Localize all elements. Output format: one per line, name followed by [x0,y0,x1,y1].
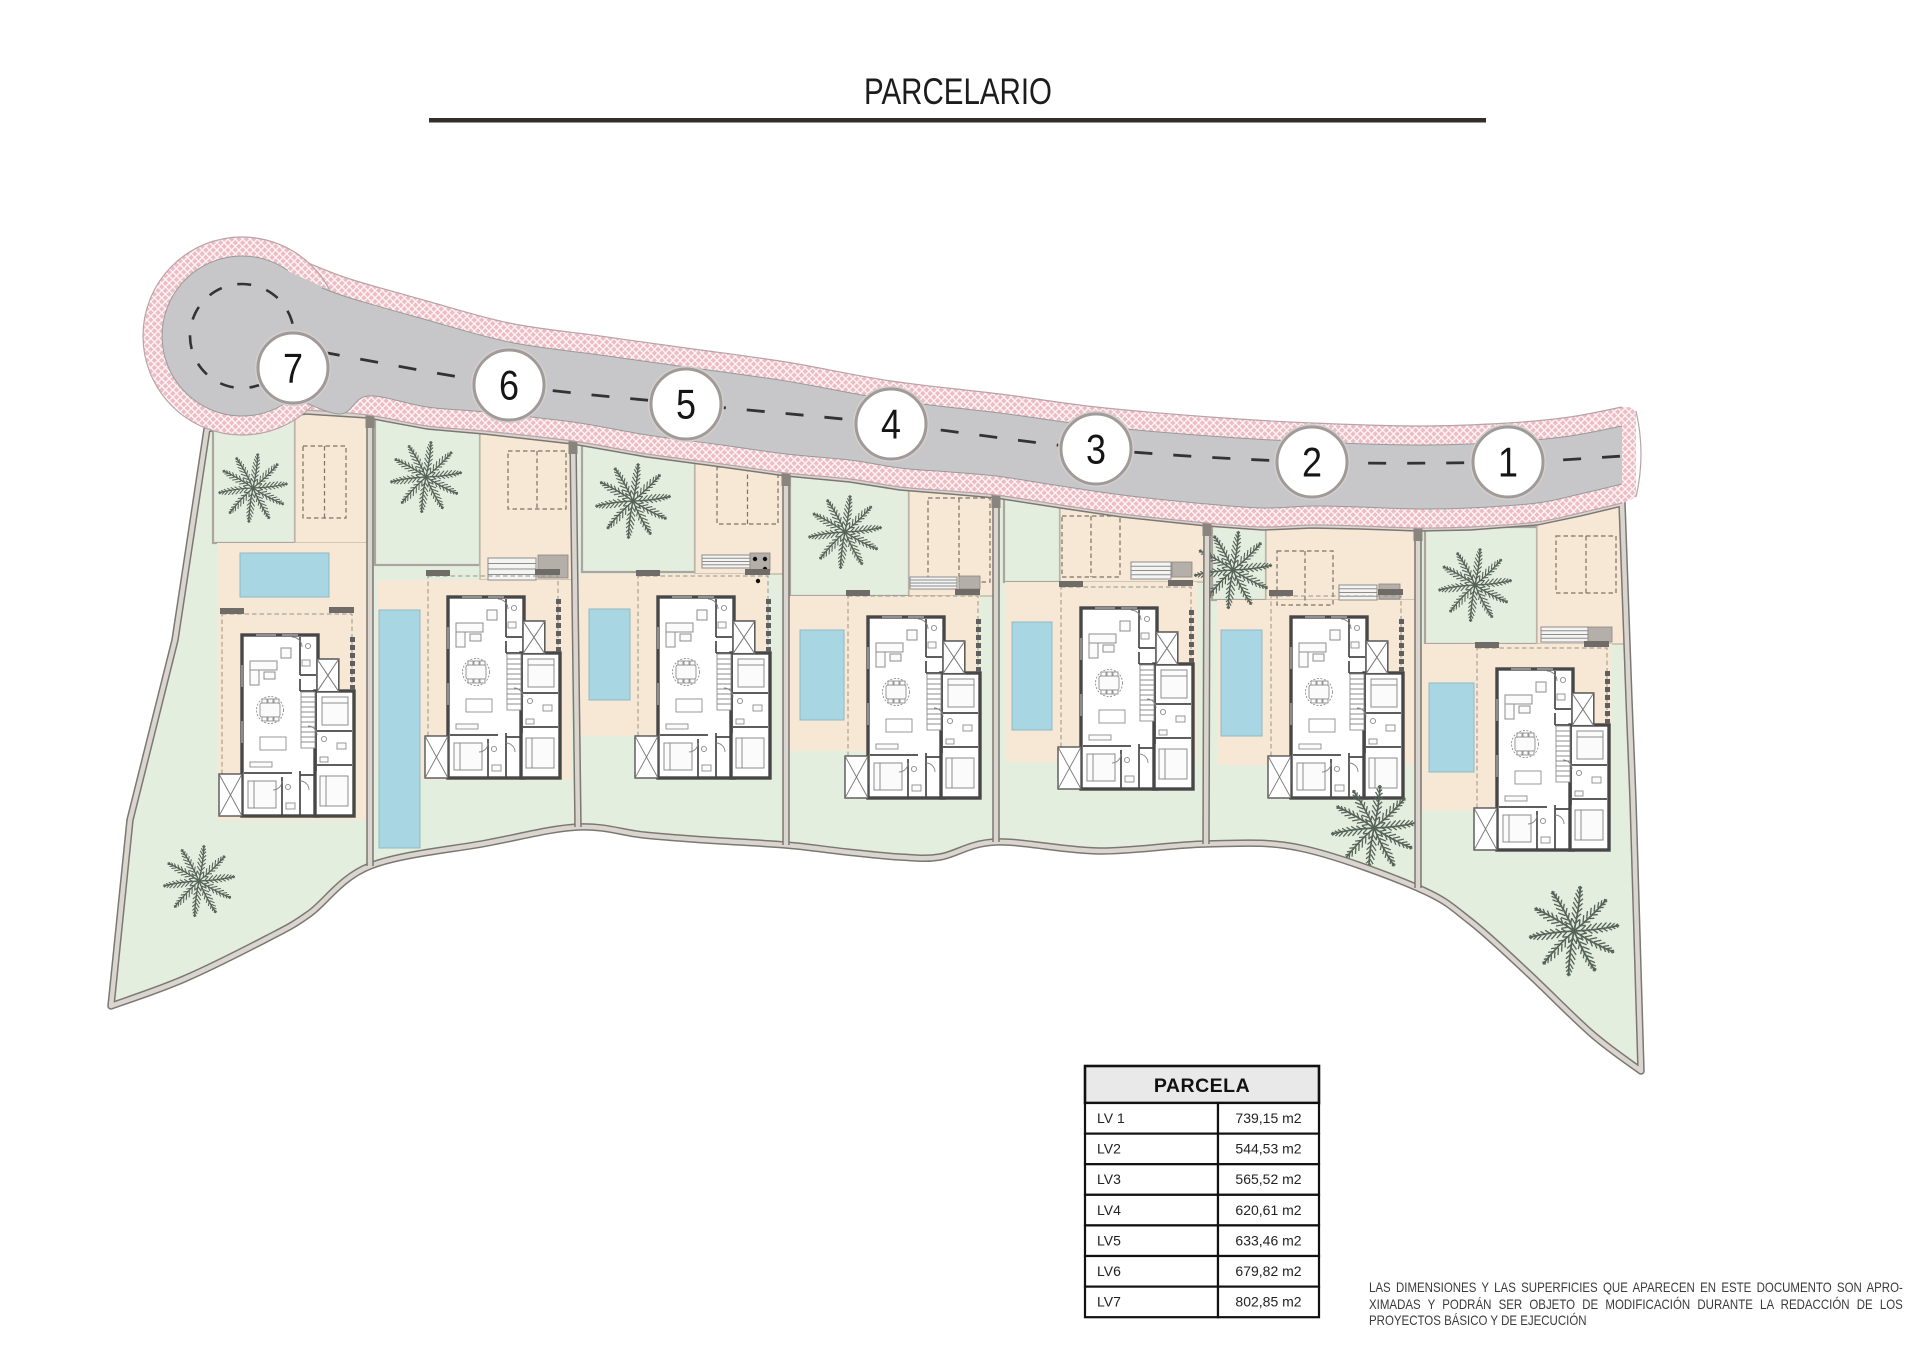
svg-text:PARCELARIO: PARCELARIO [864,71,1052,112]
svg-text:7: 7 [283,345,303,392]
svg-text:4: 4 [881,401,901,448]
svg-text:620,61 m2: 620,61 m2 [1235,1202,1301,1218]
svg-text:LV3: LV3 [1097,1171,1121,1187]
svg-text:6: 6 [499,362,519,409]
svg-text:739,15 m2: 739,15 m2 [1235,1110,1301,1126]
svg-text:LV4: LV4 [1097,1202,1121,1218]
svg-text:2: 2 [1302,439,1322,486]
svg-text:LV2: LV2 [1097,1141,1121,1157]
svg-text:544,53 m2: 544,53 m2 [1235,1141,1301,1157]
svg-text:LV6: LV6 [1097,1263,1121,1279]
svg-text:LV5: LV5 [1097,1232,1121,1248]
svg-text:3: 3 [1086,426,1106,473]
svg-text:PARCELA: PARCELA [1154,1075,1250,1097]
svg-text:1: 1 [1498,439,1518,486]
svg-text:679,82 m2: 679,82 m2 [1235,1263,1301,1279]
svg-text:LV 1: LV 1 [1097,1110,1125,1126]
svg-text:633,46 m2: 633,46 m2 [1235,1232,1301,1248]
svg-text:5: 5 [676,381,696,428]
svg-text:802,85 m2: 802,85 m2 [1235,1294,1301,1310]
svg-text:LV7: LV7 [1097,1294,1121,1310]
svg-text:565,52 m2: 565,52 m2 [1235,1171,1301,1187]
